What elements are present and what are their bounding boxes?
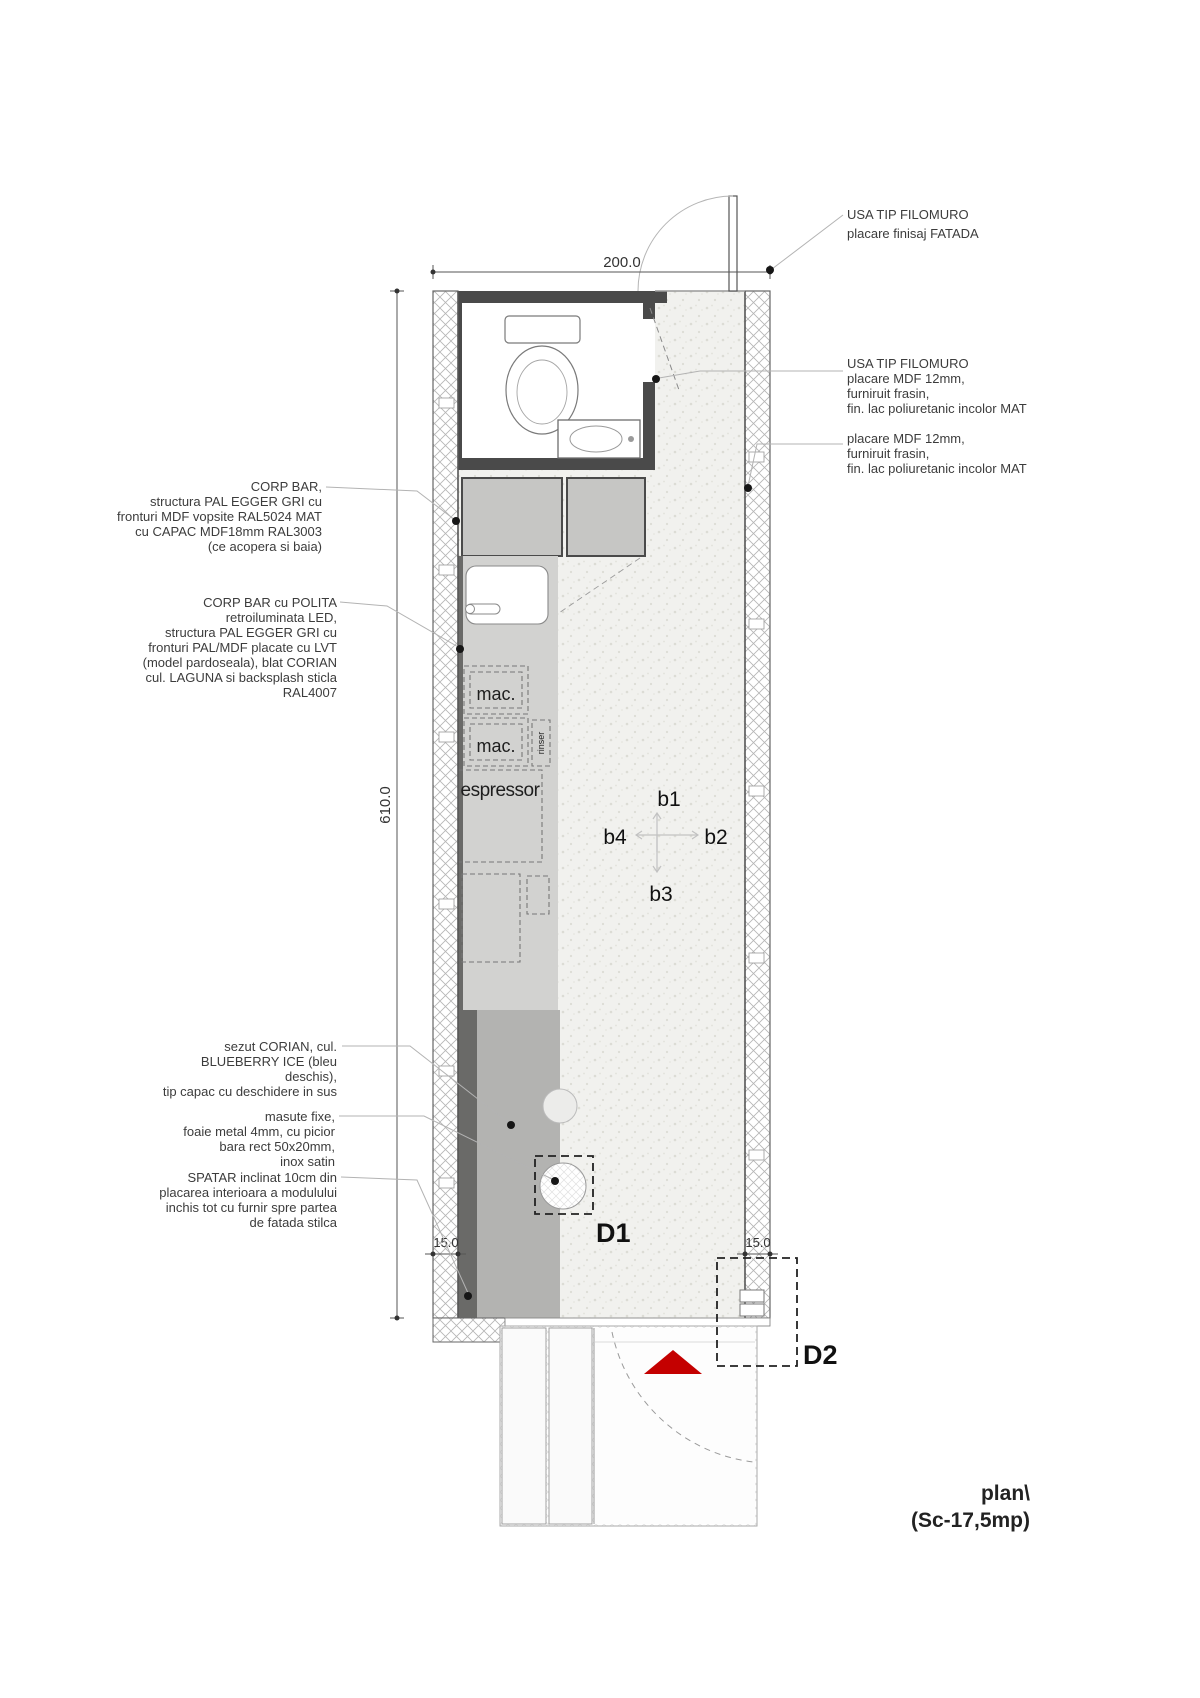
- b4-label: b4: [603, 826, 627, 849]
- facade-door: [638, 196, 737, 291]
- door-leaf: [729, 196, 737, 291]
- annotation-line: inox satin: [280, 1154, 335, 1169]
- annotation-line: (model pardoseala), blat CORIAN: [143, 655, 337, 670]
- caption-line-2: (Sc-17,5mp): [911, 1509, 1030, 1532]
- d1-label: D1: [596, 1218, 631, 1248]
- annotation-line: placare finisaj FATADA: [847, 226, 979, 241]
- bathroom-wall-bottom: [452, 458, 655, 470]
- annotation-line: sezut CORIAN, cul.: [224, 1039, 337, 1054]
- backrest-spatar: [458, 1010, 477, 1318]
- dim-15-right-label: 15.0: [745, 1235, 770, 1250]
- annotation-spatar: SPATAR inclinat 10cm din placarea interi…: [159, 1170, 338, 1230]
- annotation-cladding-mdf: placare MDF 12mm, furniruit frasin, fin.…: [847, 431, 1027, 476]
- caption-line-1: plan\: [981, 1482, 1030, 1505]
- annotation-line: SPATAR inclinat 10cm din: [187, 1170, 337, 1185]
- annotation-line: furniruit frasin,: [847, 386, 929, 401]
- annotation-line: retroiluminata LED,: [226, 610, 337, 625]
- table-circle-upper: [543, 1089, 577, 1123]
- b2-label: b2: [704, 826, 727, 849]
- annotation-line: tip capac cu deschidere in sus: [163, 1084, 338, 1099]
- annotation-line: cu CAPAC MDF18mm RAL3003: [135, 524, 322, 539]
- mac1-label: mac.: [476, 684, 515, 704]
- bathroom-wall-right: [643, 382, 655, 470]
- annotation-line: USA TIP FILOMURO: [847, 207, 969, 222]
- corp-bar-cabinet-right: [567, 478, 645, 556]
- annotation-line: (ce acopera si baia): [208, 539, 322, 554]
- corp-bar-cabinet-left: [462, 478, 562, 556]
- bathroom-sink: [558, 420, 640, 458]
- wall-bottom-threshold: [505, 1318, 770, 1326]
- dim-15-left-label: 15.0: [433, 1235, 458, 1250]
- dimension-width: 200.0: [431, 254, 773, 279]
- annotation-line: RAL4007: [283, 685, 337, 700]
- bathroom: [452, 291, 679, 470]
- annotation-line: foaie metal 4mm, cu picior: [183, 1124, 335, 1139]
- wall-left: [433, 291, 458, 1318]
- annotation-line: BLUEBERRY ICE (bleu: [201, 1054, 337, 1069]
- d2-label: D2: [803, 1340, 838, 1370]
- annotation-line: placarea interioara a modulului: [159, 1185, 337, 1200]
- toilet: [505, 316, 580, 434]
- annotation-line: placare MDF 12mm,: [847, 371, 965, 386]
- dim-610-label: 610.0: [377, 786, 394, 824]
- fixed-table: [540, 1163, 586, 1209]
- wall-bottom-left: [433, 1318, 505, 1342]
- annotation-line: placare MDF 12mm,: [847, 431, 965, 446]
- annotation-corp-bar: CORP BAR, structura PAL EGGER GRI cu fro…: [117, 479, 322, 554]
- bathroom-wall-top: [452, 291, 667, 303]
- annotation-line: structura PAL EGGER GRI cu: [150, 494, 322, 509]
- corner-cabinet-2: [740, 1304, 764, 1316]
- annotation-door-facade: USA TIP FILOMURO placare finisaj FATADA: [847, 207, 979, 241]
- annotation-line: bara rect 50x20mm,: [219, 1139, 335, 1154]
- dim-200-label: 200.0: [603, 254, 641, 271]
- annotation-line: masute fixe,: [265, 1109, 335, 1124]
- annotation-line: fin. lac poliuretanic incolor MAT: [847, 401, 1027, 416]
- annotation-line: deschis),: [285, 1069, 337, 1084]
- vestibule-panel-2: [549, 1328, 592, 1524]
- annotation-corp-bar-polita: CORP BAR cu POLITA retroiluminata LED, s…: [143, 595, 338, 700]
- annotation-sezut: sezut CORIAN, cul. BLUEBERRY ICE (bleu d…: [163, 1039, 338, 1099]
- annotation-line: fronturi MDF vopsite RAL5024 MAT: [117, 509, 322, 524]
- bar-sink: [466, 566, 549, 624]
- espressor-label: espressor: [461, 780, 541, 801]
- annotation-line: fronturi PAL/MDF placate cu LVT: [148, 640, 337, 655]
- annotation-line: de fatada stilca: [250, 1215, 338, 1230]
- annotation-line: cul. LAGUNA si backsplash sticla: [146, 670, 338, 685]
- door-swing-arc: [638, 196, 733, 291]
- annotation-line: inchis tot cu furnir spre partea: [166, 1200, 338, 1215]
- annotation-line: fin. lac poliuretanic incolor MAT: [847, 461, 1027, 476]
- annotation-line: USA TIP FILOMURO: [847, 356, 969, 371]
- entry-vestibule: [500, 1326, 757, 1526]
- annotation-line: structura PAL EGGER GRI cu: [165, 625, 337, 640]
- annotation-door-mdf: USA TIP FILOMURO placare MDF 12mm, furni…: [847, 356, 1027, 416]
- bathroom-wall-right-stub: [643, 303, 655, 319]
- annotation-masute: masute fixe, foaie metal 4mm, cu picior …: [183, 1109, 335, 1169]
- rinser-label: rinser: [536, 732, 546, 755]
- dimension-height: 610.0: [377, 289, 404, 1321]
- vestibule-panel-1: [502, 1328, 546, 1524]
- mac2-label: mac.: [476, 736, 515, 756]
- plan-caption: plan\ (Sc-17,5mp): [911, 1482, 1030, 1532]
- annotation-line: CORP BAR cu POLITA: [203, 595, 337, 610]
- wall-right: [745, 291, 770, 1318]
- floor-plan-drawing: mac. mac. rinser espressor D1: [0, 0, 1200, 1698]
- annotation-line: CORP BAR,: [251, 479, 322, 494]
- corner-cabinet-1: [740, 1290, 764, 1302]
- b3-label: b3: [649, 883, 672, 906]
- floor-plan-page: mac. mac. rinser espressor D1: [0, 0, 1200, 1698]
- annotation-line: furniruit frasin,: [847, 446, 929, 461]
- bench-seat: [477, 1010, 560, 1318]
- b1-label: b1: [657, 788, 680, 811]
